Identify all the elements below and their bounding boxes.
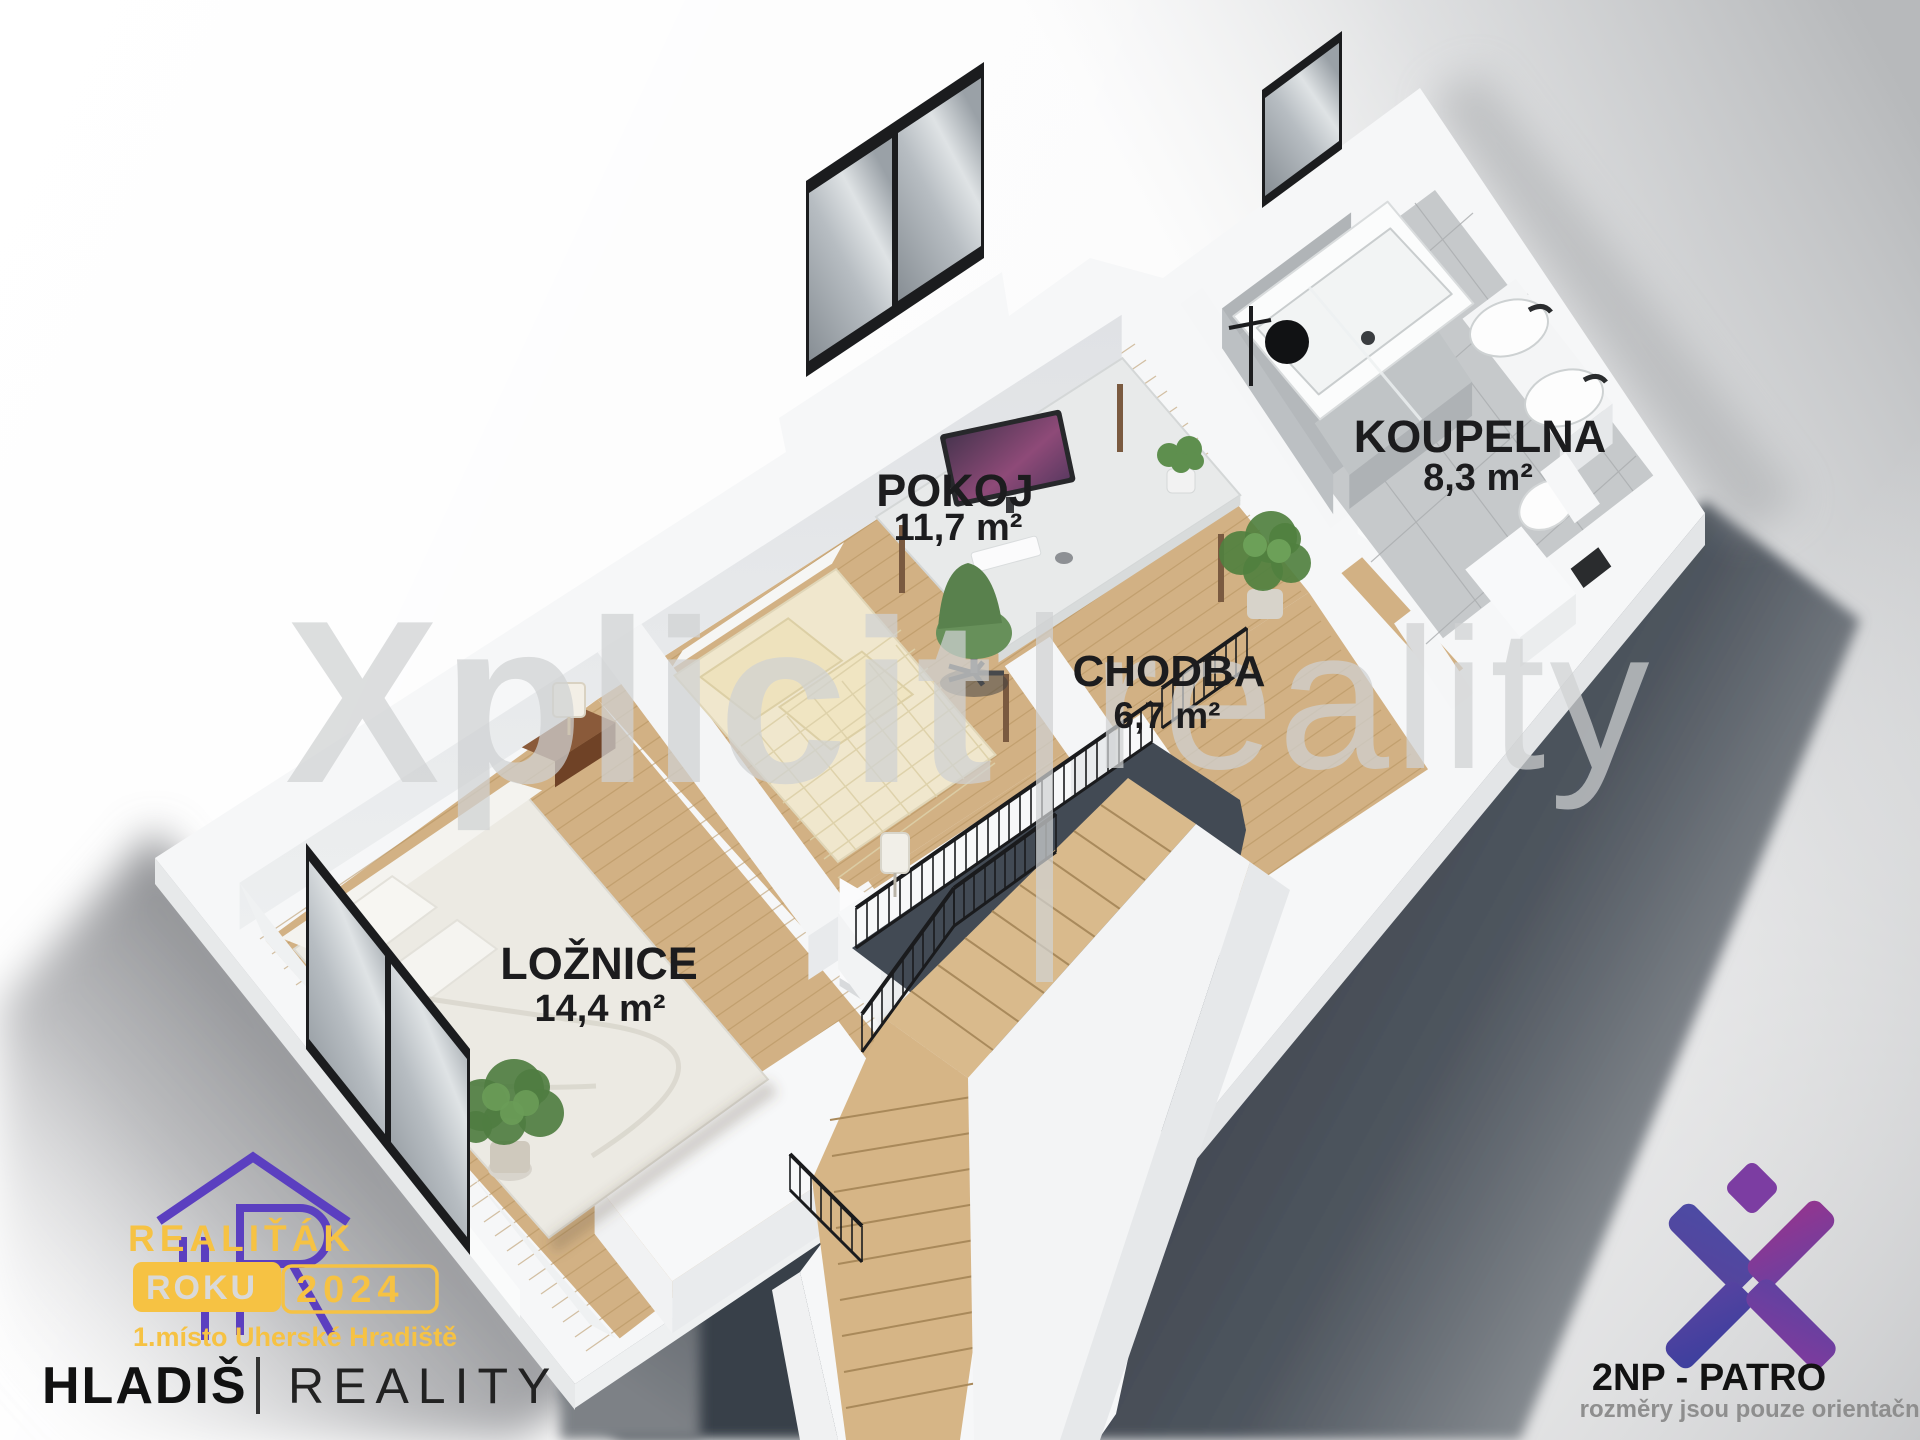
svg-text:rozměry jsou pouze orientační: rozměry jsou pouze orientační [1580, 1396, 1920, 1423]
svg-text:2NP - PATRO: 2NP - PATRO [1592, 1357, 1826, 1399]
svg-text:6,7 m²: 6,7 m² [1114, 695, 1221, 736]
svg-text:11,7 m²: 11,7 m² [894, 507, 1023, 549]
svg-text:CHODBA: CHODBA [1072, 647, 1265, 696]
svg-text:2024: 2024 [296, 1269, 405, 1311]
svg-text:HLADIŠ: HLADIŠ [42, 1356, 248, 1415]
svg-text:LOŽNICE: LOŽNICE [500, 938, 698, 989]
svg-text:8,3 m²: 8,3 m² [1423, 457, 1533, 499]
svg-text:KOUPELNA: KOUPELNA [1354, 411, 1607, 462]
svg-text:Xplicit: Xplicit [285, 573, 995, 832]
svg-text:REALITY: REALITY [288, 1358, 559, 1414]
svg-text:1.místo Uherské Hradiště: 1.místo Uherské Hradiště [133, 1322, 457, 1352]
svg-text:14,4 m²: 14,4 m² [535, 988, 666, 1030]
svg-text:ROKU: ROKU [146, 1269, 258, 1307]
svg-text:REALIŤÁK: REALIŤÁK [128, 1217, 355, 1259]
